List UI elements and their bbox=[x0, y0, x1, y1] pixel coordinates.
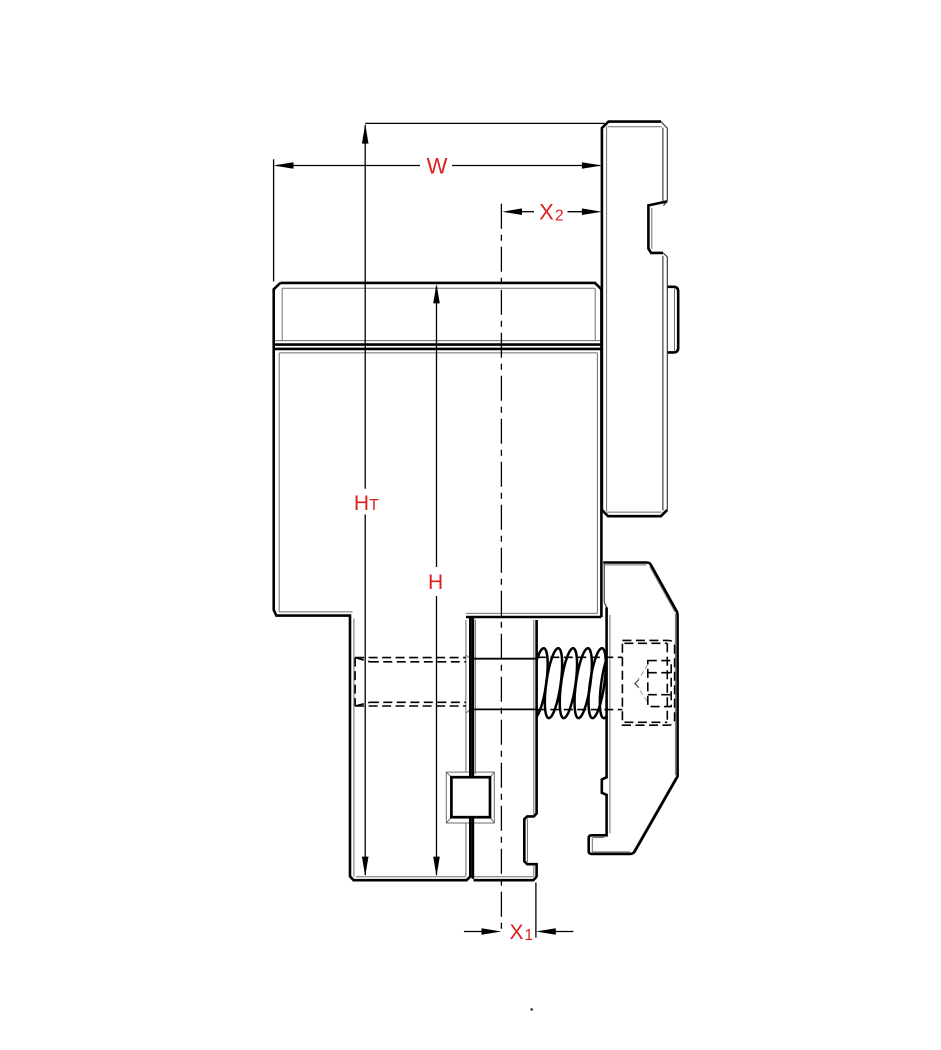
svg-text:X: X bbox=[539, 200, 554, 225]
svg-text:W: W bbox=[427, 154, 448, 179]
svg-text:H: H bbox=[428, 571, 443, 594]
svg-text:1: 1 bbox=[525, 927, 534, 944]
svg-text:H: H bbox=[354, 492, 369, 515]
svg-text:T: T bbox=[369, 497, 379, 514]
svg-text:2: 2 bbox=[555, 208, 564, 225]
svg-text:X: X bbox=[509, 921, 523, 944]
